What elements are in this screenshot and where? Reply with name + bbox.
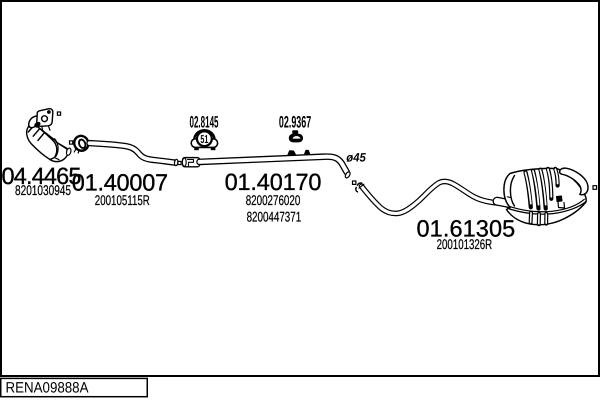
svg-text:ø45: ø45 [346,151,366,165]
svg-text:200105115R: 200105115R [95,192,150,208]
svg-text:02.8145: 02.8145 [190,113,219,132]
svg-text:RENA09888A: RENA09888A [6,380,89,397]
svg-text:8200447371: 8200447371 [247,208,302,224]
svg-text:02.9367: 02.9367 [279,113,311,132]
svg-text:51: 51 [200,134,208,146]
svg-text:8201030945: 8201030945 [15,182,71,198]
svg-text:8200276020: 8200276020 [246,192,301,208]
svg-text:200101326R: 200101326R [437,236,493,252]
